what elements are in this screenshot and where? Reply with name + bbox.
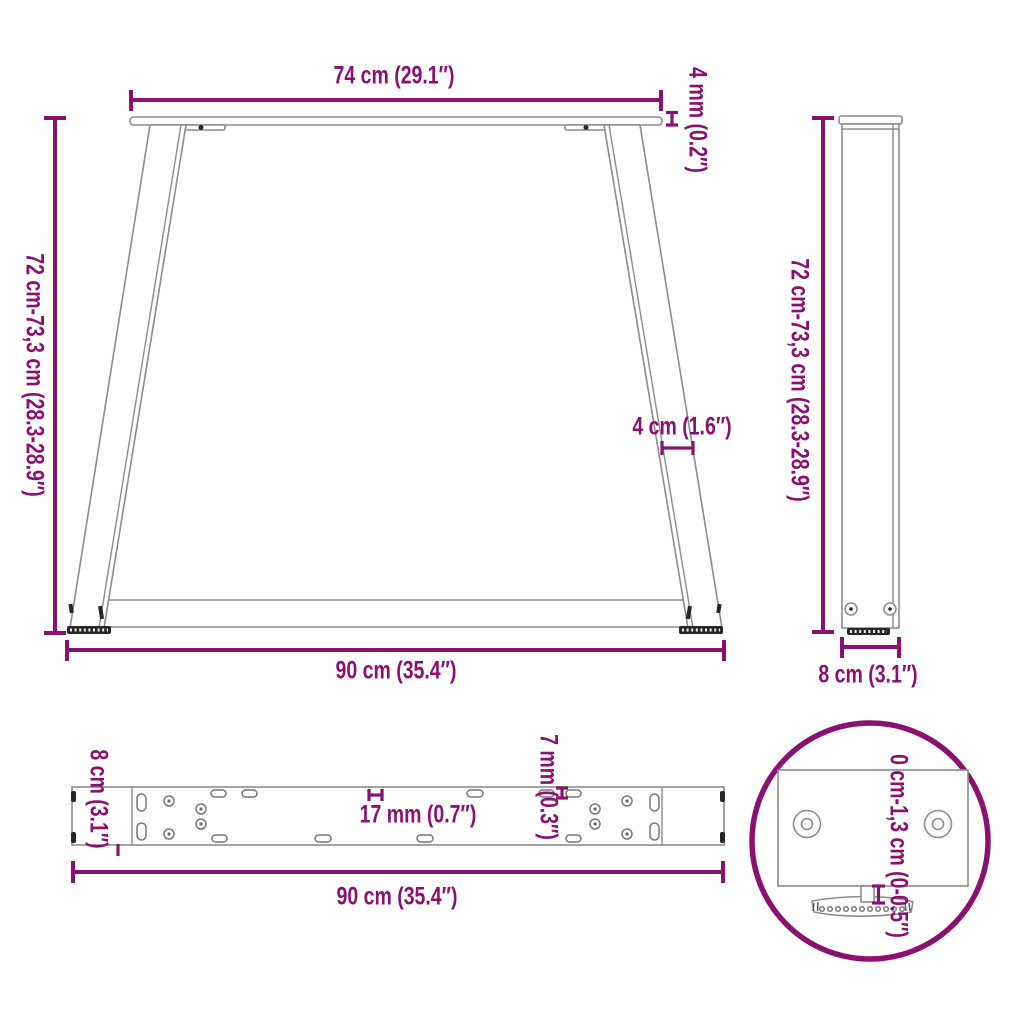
screw-hole-center (167, 832, 170, 835)
slot-hole (566, 835, 581, 842)
end-clip (71, 832, 76, 843)
slot-hole (650, 794, 659, 811)
left-mounting-screw-icon (199, 125, 204, 130)
bottom-stretcher-bar (98, 600, 690, 627)
slot-hole (417, 835, 433, 842)
foot-knurl-dot (828, 907, 833, 912)
side-depth-dimension (842, 637, 899, 658)
slot-hole (212, 835, 227, 842)
foot-knurl-dot (836, 907, 841, 912)
detail-view (752, 723, 988, 959)
screw-hole-center (625, 832, 628, 835)
screw-hole-center (593, 807, 596, 810)
detail-screw-center (933, 819, 944, 830)
screw-hole-center (593, 822, 596, 825)
slot-hole (566, 790, 581, 797)
slot-hole (650, 823, 659, 840)
foot-knurl-dot (820, 907, 825, 912)
front-bottom-width-label: 90 cm (35.4″) (336, 659, 457, 684)
slot-hole (137, 794, 146, 811)
screw-hole-center (199, 807, 202, 810)
top-slot-width-label: 17 mm (0.7″) (360, 803, 477, 828)
end-clip (720, 832, 725, 843)
top-plate (130, 117, 662, 125)
foot-knurl-dot (876, 907, 881, 912)
foot-knurl-dot (868, 907, 873, 912)
side-top-cap (839, 116, 902, 124)
front-view (67, 117, 723, 634)
foot-knurl-dot (860, 907, 865, 912)
end-clip (720, 791, 725, 802)
front-leg-width-label: 4 cm (1.6″) (632, 415, 731, 440)
side-depth-label: 8 cm (3.1″) (818, 663, 917, 688)
side-leg-body (842, 124, 899, 628)
side-screw-center (888, 607, 892, 611)
top-depth-label: 8 cm (3.1″) (86, 749, 111, 848)
screw-hole-center (199, 822, 202, 825)
detail-foot-stem (861, 886, 874, 902)
slot-hole (137, 823, 146, 840)
foot-knurl-dot (852, 907, 857, 912)
detail-screw-center (802, 819, 813, 830)
side-screw-center (849, 607, 853, 611)
screw-hole-center (167, 799, 170, 802)
top-hole-width-label: 7 mm (0.3″) (536, 734, 561, 840)
product-dimension-diagram: 74 cm (29.1″) 4 mm (0.2″) 72 cm-73,3 cm … (0, 0, 1024, 1024)
end-clip (71, 791, 76, 802)
technical-drawing (0, 0, 1024, 1024)
foot-knurl-dot (844, 907, 849, 912)
top-length-label: 90 cm (35.4″) (337, 885, 458, 910)
detail-adjustment-label: 0 cm-1,3 cm (0-0.5″) (886, 754, 911, 938)
side-height-dimension (812, 118, 834, 632)
front-top-width-label: 74 cm (29.1″) (334, 64, 455, 89)
front-plate-thickness-dimension (666, 113, 678, 126)
slot-hole (467, 790, 483, 797)
slot-hole (242, 790, 257, 797)
right-mounting-screw-icon (584, 125, 589, 130)
top-length-dimension (73, 861, 723, 883)
slot-hole (211, 790, 226, 797)
slot-hole (315, 835, 331, 842)
front-plate-thickness-label: 4 mm (0.2″) (685, 67, 710, 173)
side-height-label: 72 cm-73,3 cm (28.3-28.9″) (787, 258, 812, 501)
front-top-width-dimension (131, 90, 661, 111)
side-view (839, 116, 902, 635)
front-height-label: 72 cm-73,3 cm (28.3-28.9″) (22, 253, 47, 496)
screw-hole-center (625, 799, 628, 802)
